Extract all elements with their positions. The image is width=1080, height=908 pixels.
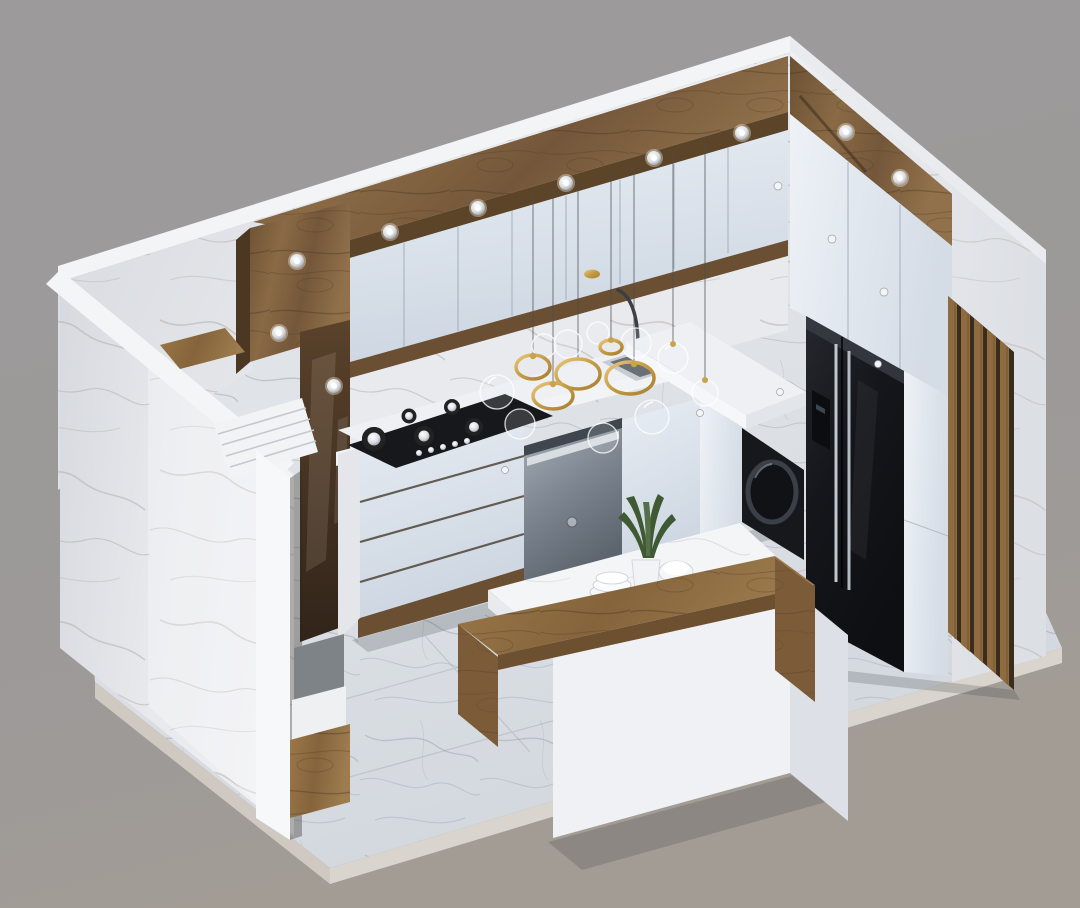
- ceiling-spotlight: [891, 169, 909, 187]
- dishwasher-badge: [567, 517, 577, 527]
- drawer-unit-endpanel: [338, 448, 360, 640]
- glass-globe: [588, 423, 618, 453]
- cabinet-knob: [777, 389, 784, 396]
- wood-slat: [961, 307, 970, 652]
- left-wall-cut-edge: [256, 450, 290, 840]
- kitchen-render: [0, 0, 1080, 908]
- ceiling-spotlight: [288, 252, 306, 270]
- cabinet-knob: [880, 288, 888, 296]
- ceiling-spotlight: [645, 149, 663, 167]
- tall-cabinet-right: [904, 371, 948, 676]
- gas-burner: [444, 399, 460, 415]
- glass-globe: [658, 343, 688, 373]
- ceiling-spotlight: [557, 174, 575, 192]
- glass-globe: [480, 375, 514, 409]
- cabinet-knob: [875, 361, 882, 368]
- cabinet-knob: [828, 235, 836, 243]
- gas-burner: [402, 409, 417, 424]
- wood-slat-panel: [948, 296, 1014, 690]
- cabinet-knob: [502, 467, 509, 474]
- wood-slat: [987, 329, 996, 674]
- glass-globe: [505, 409, 535, 439]
- cut-cabinet-wood-grain: [290, 724, 350, 818]
- glass-globe: [692, 380, 718, 406]
- gas-burner: [362, 427, 386, 451]
- ceiling-spotlight: [325, 377, 343, 395]
- wood-slat: [1000, 340, 1009, 686]
- glass-globe: [621, 328, 651, 358]
- gas-burner: [414, 426, 434, 446]
- kitchen-scene-svg: [0, 0, 1080, 908]
- gas-burner: [465, 418, 483, 436]
- glass-globe: [554, 330, 582, 358]
- fridge-dispenser: [812, 390, 830, 450]
- glass-globe: [635, 400, 669, 434]
- ceiling-spotlight: [270, 324, 288, 342]
- ceiling-spotlight: [381, 223, 399, 241]
- washer-door: [748, 462, 796, 522]
- ceiling-spotlight: [469, 199, 487, 217]
- cut-base-cabinet: [290, 634, 350, 818]
- ceiling-spotlight: [733, 124, 751, 142]
- ceiling-spotlight: [837, 123, 855, 141]
- wood-slat: [948, 296, 957, 640]
- cabinet-knob: [697, 410, 704, 417]
- pendant-canopy: [584, 270, 600, 279]
- cabinet-knob: [774, 182, 782, 190]
- wood-slat: [974, 318, 983, 663]
